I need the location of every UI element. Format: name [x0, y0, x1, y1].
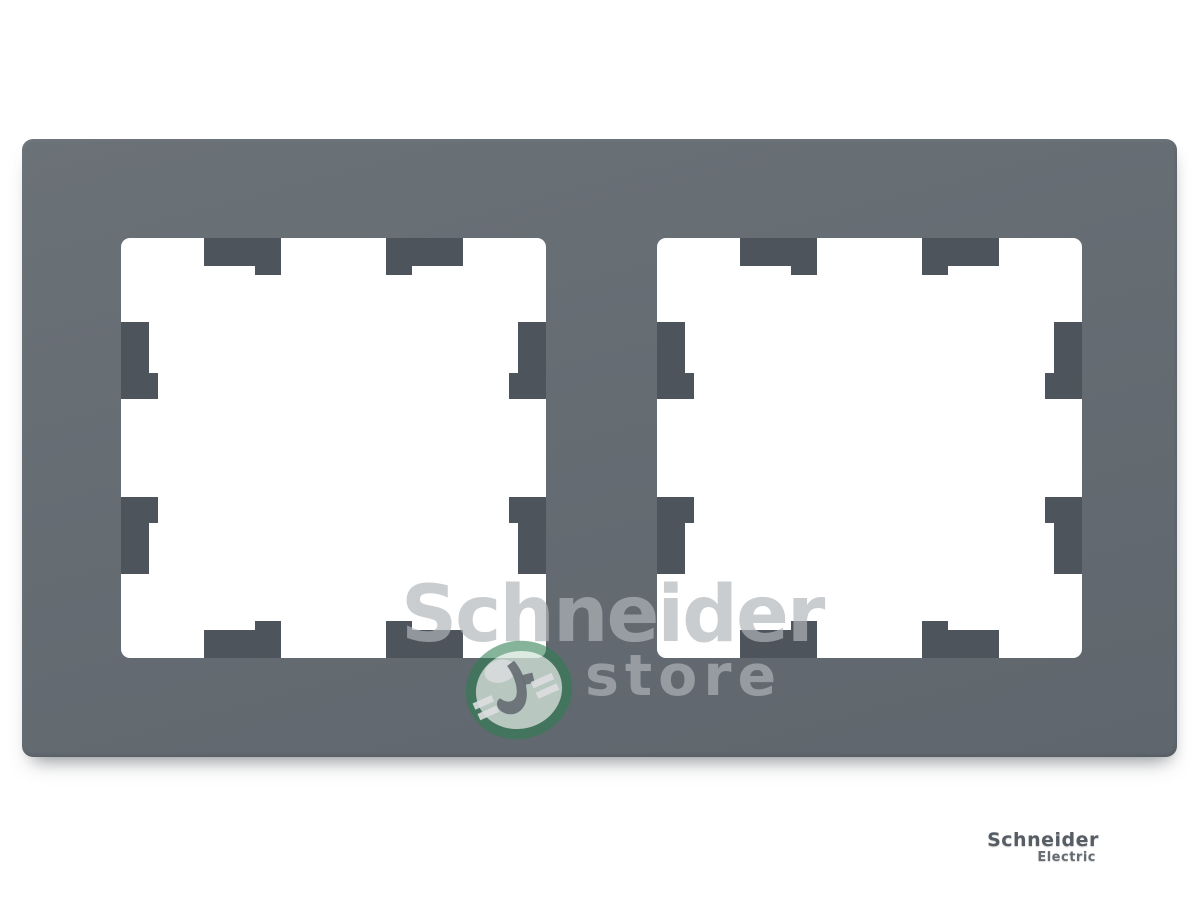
mounting-tab-step: [791, 238, 817, 275]
mounting-tab-step: [509, 373, 546, 399]
mounting-tab-step: [922, 238, 948, 275]
embossed-brand-logo: Schneider Electric: [982, 831, 1104, 865]
mounting-tab-step: [255, 238, 281, 275]
mounting-tab-step: [657, 373, 694, 399]
embossed-brand-name: Schneider: [982, 831, 1104, 851]
mounting-tab-step: [121, 373, 158, 399]
mounting-tab-step: [1045, 373, 1082, 399]
mounting-tab-step: [657, 497, 694, 523]
mounting-tab-step: [121, 497, 158, 523]
mounting-tab-step: [1045, 497, 1082, 523]
mounting-tab-step: [922, 621, 948, 658]
product-photo: Schneider Electric Schneider store: [0, 0, 1200, 900]
embossed-brand-sub: Electric: [982, 851, 1104, 865]
mounting-tab-step: [386, 238, 412, 275]
mounting-tab-step: [509, 497, 546, 523]
watermark-store-text: store: [585, 648, 782, 705]
mounting-tab-step: [255, 621, 281, 658]
